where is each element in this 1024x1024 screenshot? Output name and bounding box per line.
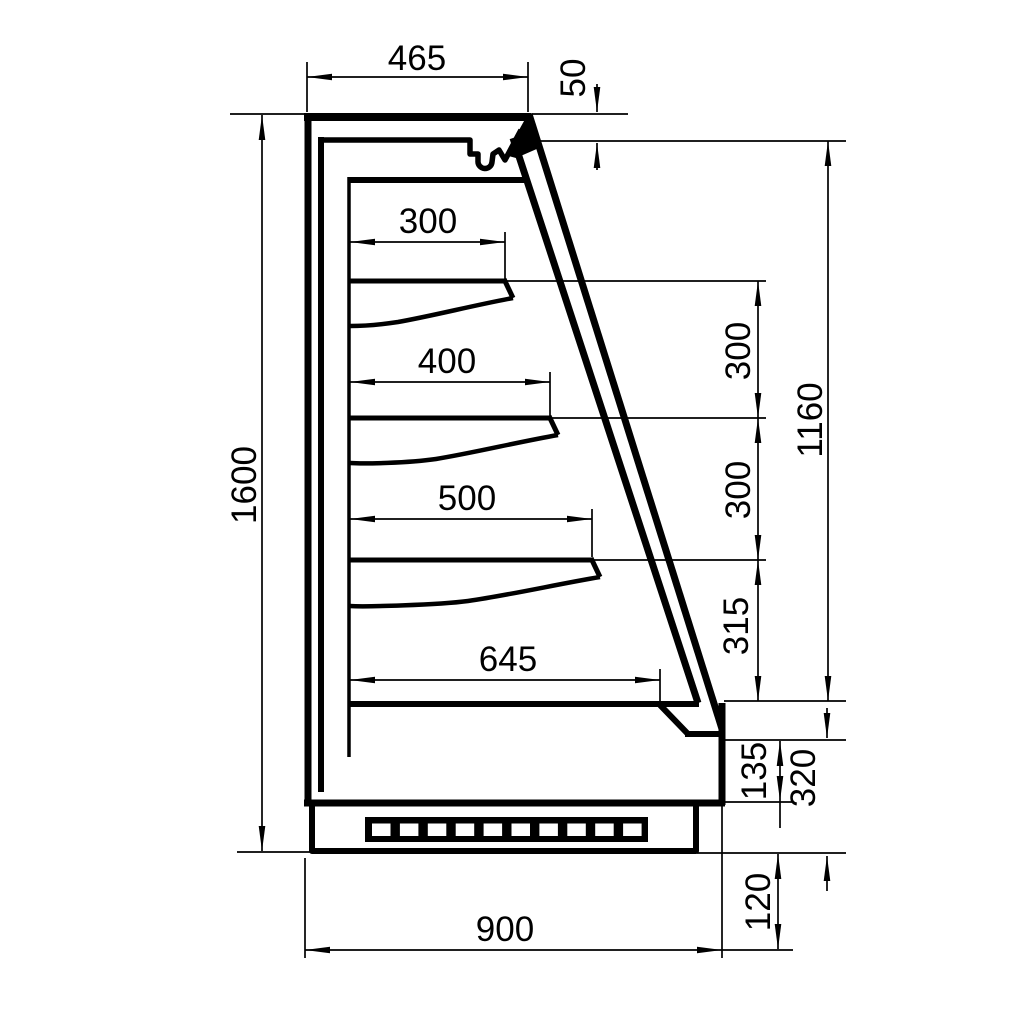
dimension-canopy-front-height: 50 [532,59,846,170]
dim-label-canopy-front-height: 50 [554,59,593,98]
shelf-1 [348,279,513,326]
dim-label-base-section-height: 320 [784,749,823,807]
dim-label-bumper-height: 135 [735,742,774,800]
bumper-step-diagonal [660,705,688,734]
dimension-shelf-2-depth: 400 [350,342,550,416]
dim-label-plinth-height: 120 [739,873,778,931]
dim-label-overall-depth: 900 [476,910,534,949]
front-glass-outer [529,114,722,729]
shelf-2-underside [350,435,558,463]
shelf-3-underside [350,577,600,606]
grille-slot [484,824,503,837]
dim-label-shelf-1-depth: 300 [399,202,457,241]
dimension-front-opening-height: 1160 [791,141,830,701]
dim-label-front-opening-height: 1160 [791,382,830,457]
dim-label-shelf-gap-3: 315 [717,597,756,655]
shelf-2 [348,416,558,463]
dim-label-shelf-2-depth: 400 [418,342,476,381]
dimension-top-depth: 465 [307,39,528,112]
grille-slot [567,824,586,837]
dimension-base-shelf-depth: 645 [350,640,660,702]
grille-slot [372,824,391,837]
dim-label-overall-height: 1600 [225,446,264,524]
dim-label-shelf-3-depth: 500 [438,479,496,518]
grille-slot [623,824,642,837]
grille-slot [456,824,475,837]
canopy-underside-profile [322,130,521,169]
grille-slot [512,824,531,837]
grille-slot [400,824,419,837]
shelf-3 [348,558,600,606]
dim-label-shelf-gap-2: 300 [719,461,758,519]
dim-label-shelf-gap-1: 300 [719,322,758,380]
technical-drawing-page: 465 50 300 400 500 645 1600 [0,0,1024,1024]
shelf-1-underside [350,298,513,326]
grille-slot [539,824,558,837]
ventilation-grille [365,817,648,842]
dimension-overall-height: 1600 [225,114,310,852]
technical-drawing-canvas: 465 50 300 400 500 645 1600 [0,0,1024,1024]
grille-slot [428,824,447,837]
dimension-shelf-1-depth: 300 [350,202,505,279]
dimension-plinth-height: 120 [722,854,793,950]
dim-label-base-shelf-depth: 645 [479,640,537,679]
dim-label-top-depth: 465 [388,39,446,78]
grille-slot [595,824,614,837]
dimension-shelf-3-depth: 500 [350,479,592,557]
cabinet-cross-section [304,113,725,851]
